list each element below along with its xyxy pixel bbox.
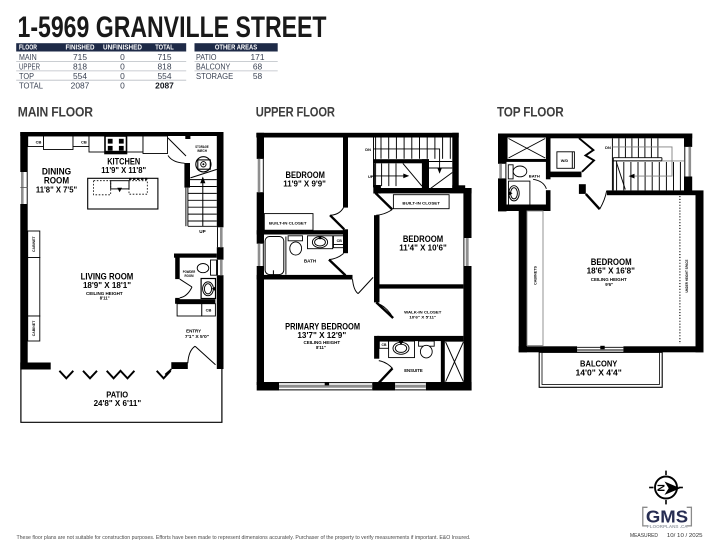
svg-text:FLOOR: FLOOR xyxy=(19,45,37,52)
svg-text:ENTRY: ENTRY xyxy=(186,329,201,334)
svg-text:24'8" X 6'11": 24'8" X 6'11" xyxy=(94,398,142,408)
svg-text:TOP FLOOR: TOP FLOOR xyxy=(497,105,564,120)
svg-text:CABINET: CABINET xyxy=(32,236,36,252)
svg-text:OTHER AREAS: OTHER AREAS xyxy=(215,45,258,52)
svg-text:CB: CB xyxy=(206,308,212,313)
svg-text:TOP: TOP xyxy=(19,71,34,81)
svg-text:58: 58 xyxy=(253,71,263,81)
svg-text:CB: CB xyxy=(81,139,87,144)
svg-text:CB: CB xyxy=(36,139,42,144)
svg-text:10/ 10 / 2025: 10/ 10 / 2025 xyxy=(667,533,703,539)
svg-text:BUILT-IN CLOSET: BUILT-IN CLOSET xyxy=(269,220,307,225)
svg-text:BATH: BATH xyxy=(304,258,316,263)
svg-text:UNDER HEIGHT SPACE: UNDER HEIGHT SPACE xyxy=(685,259,689,293)
svg-text:171: 171 xyxy=(251,52,265,62)
svg-text:715: 715 xyxy=(158,52,172,62)
svg-text:These floor plans are not suit: These floor plans are not suitable for c… xyxy=(17,535,471,541)
svg-text:UP: UP xyxy=(368,174,374,179)
svg-text:0: 0 xyxy=(120,71,125,81)
svg-text:CB: CB xyxy=(337,239,343,243)
svg-text:11'4" X 10'6": 11'4" X 10'6" xyxy=(399,242,447,252)
svg-text:1-5969 GRANVILLE STREET: 1-5969 GRANVILLE STREET xyxy=(18,11,327,44)
svg-text:DN: DN xyxy=(365,147,371,152)
svg-text:554: 554 xyxy=(158,71,172,81)
svg-text:/MECH: /MECH xyxy=(197,149,207,153)
svg-text:TOTAL: TOTAL xyxy=(19,80,43,90)
svg-text:WALK-IN CLOSET: WALK-IN CLOSET xyxy=(404,309,442,314)
svg-text:ENSUITE: ENSUITE xyxy=(404,368,423,373)
svg-text:UNFINISHED: UNFINISHED xyxy=(103,45,142,52)
svg-text:18'6" X 16'8": 18'6" X 16'8" xyxy=(587,265,635,275)
svg-text:11'8" X 7'5": 11'8" X 7'5" xyxy=(36,185,77,195)
svg-text:MAIN: MAIN xyxy=(19,52,37,62)
svg-text:BATH: BATH xyxy=(529,174,540,178)
svg-text:11'9" X 11'8": 11'9" X 11'8" xyxy=(101,165,146,175)
svg-text:9'6": 9'6" xyxy=(605,282,613,287)
svg-text:554: 554 xyxy=(73,71,87,81)
svg-text:MEASURED: MEASURED xyxy=(630,533,658,539)
svg-text:FINISHED: FINISHED xyxy=(66,45,95,52)
svg-text:CABINETS: CABINETS xyxy=(534,266,538,285)
svg-text:CABINET: CABINET xyxy=(32,320,36,336)
svg-text:MAIN FLOOR: MAIN FLOOR xyxy=(18,105,93,120)
svg-text:0: 0 xyxy=(120,52,125,62)
svg-text:0: 0 xyxy=(120,80,125,90)
svg-text:FLOORPLANS .CA: FLOORPLANS .CA xyxy=(647,524,688,529)
svg-text:TOTAL: TOTAL xyxy=(155,45,174,52)
svg-text:W/D: W/D xyxy=(561,159,569,163)
svg-text:8'11": 8'11" xyxy=(316,345,326,350)
svg-text:14'0" X 4'4": 14'0" X 4'4" xyxy=(576,367,622,377)
svg-text:N: N xyxy=(654,484,666,492)
svg-text:BUILT-IN CLOSET: BUILT-IN CLOSET xyxy=(402,201,440,206)
svg-text:2087: 2087 xyxy=(71,80,90,90)
svg-text:10'6" X 5'11": 10'6" X 5'11" xyxy=(409,316,436,320)
svg-text:13'7" X 12'9": 13'7" X 12'9" xyxy=(297,330,346,340)
svg-text:DN: DN xyxy=(605,145,611,150)
svg-text:CB: CB xyxy=(382,343,387,347)
svg-text:UPPER FLOOR: UPPER FLOOR xyxy=(256,105,335,120)
svg-text:7'1" X 5'0": 7'1" X 5'0" xyxy=(185,334,209,339)
svg-text:8'11": 8'11" xyxy=(100,296,110,301)
svg-text:STORAGE: STORAGE xyxy=(196,71,234,81)
svg-text:11'9" X 9'9": 11'9" X 9'9" xyxy=(283,178,326,188)
svg-text:18'9" X 18'1": 18'9" X 18'1" xyxy=(83,280,131,290)
svg-text:2087: 2087 xyxy=(155,80,174,90)
svg-text:715: 715 xyxy=(73,52,87,62)
svg-text:ROOM: ROOM xyxy=(185,274,194,278)
svg-text:PATIO: PATIO xyxy=(196,52,217,62)
svg-text:UP: UP xyxy=(199,229,205,234)
svg-text:STORAGE: STORAGE xyxy=(195,145,209,149)
